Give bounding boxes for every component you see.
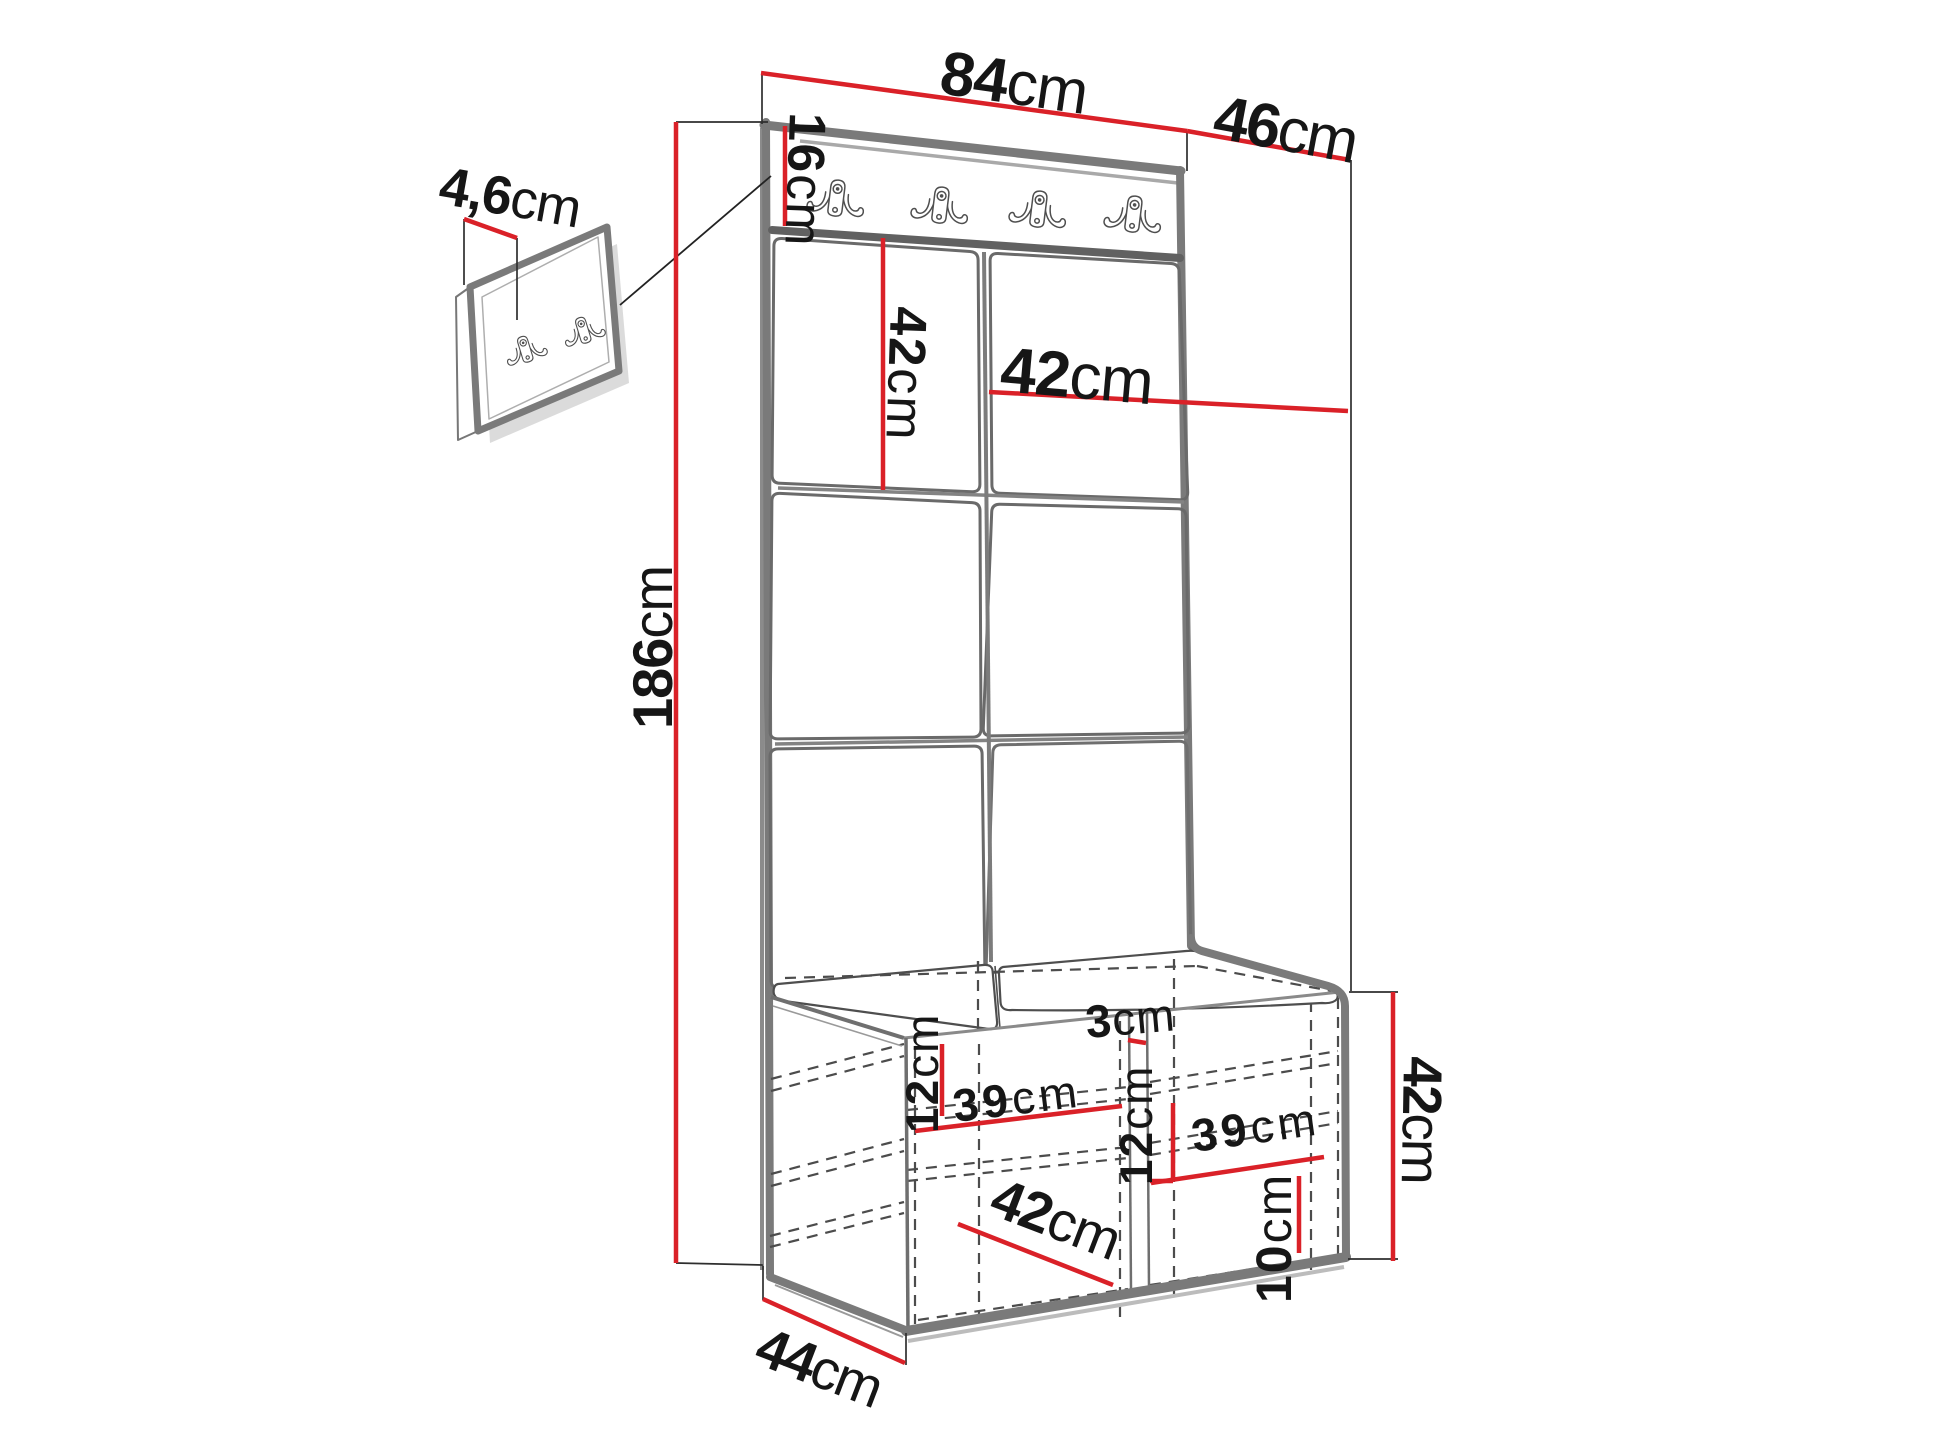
svg-text:42cm: 42cm	[874, 306, 937, 443]
svg-text:12cm: 12cm	[1110, 1065, 1162, 1186]
svg-text:42cm: 42cm	[1390, 1056, 1454, 1184]
svg-text:3cm: 3cm	[1083, 988, 1177, 1048]
svg-text:42cm: 42cm	[998, 333, 1156, 418]
svg-text:10cm: 10cm	[1246, 1173, 1302, 1303]
svg-text:12cm: 12cm	[896, 1013, 948, 1134]
svg-text:16cm: 16cm	[773, 112, 836, 249]
svg-text:186cm: 186cm	[621, 566, 684, 729]
